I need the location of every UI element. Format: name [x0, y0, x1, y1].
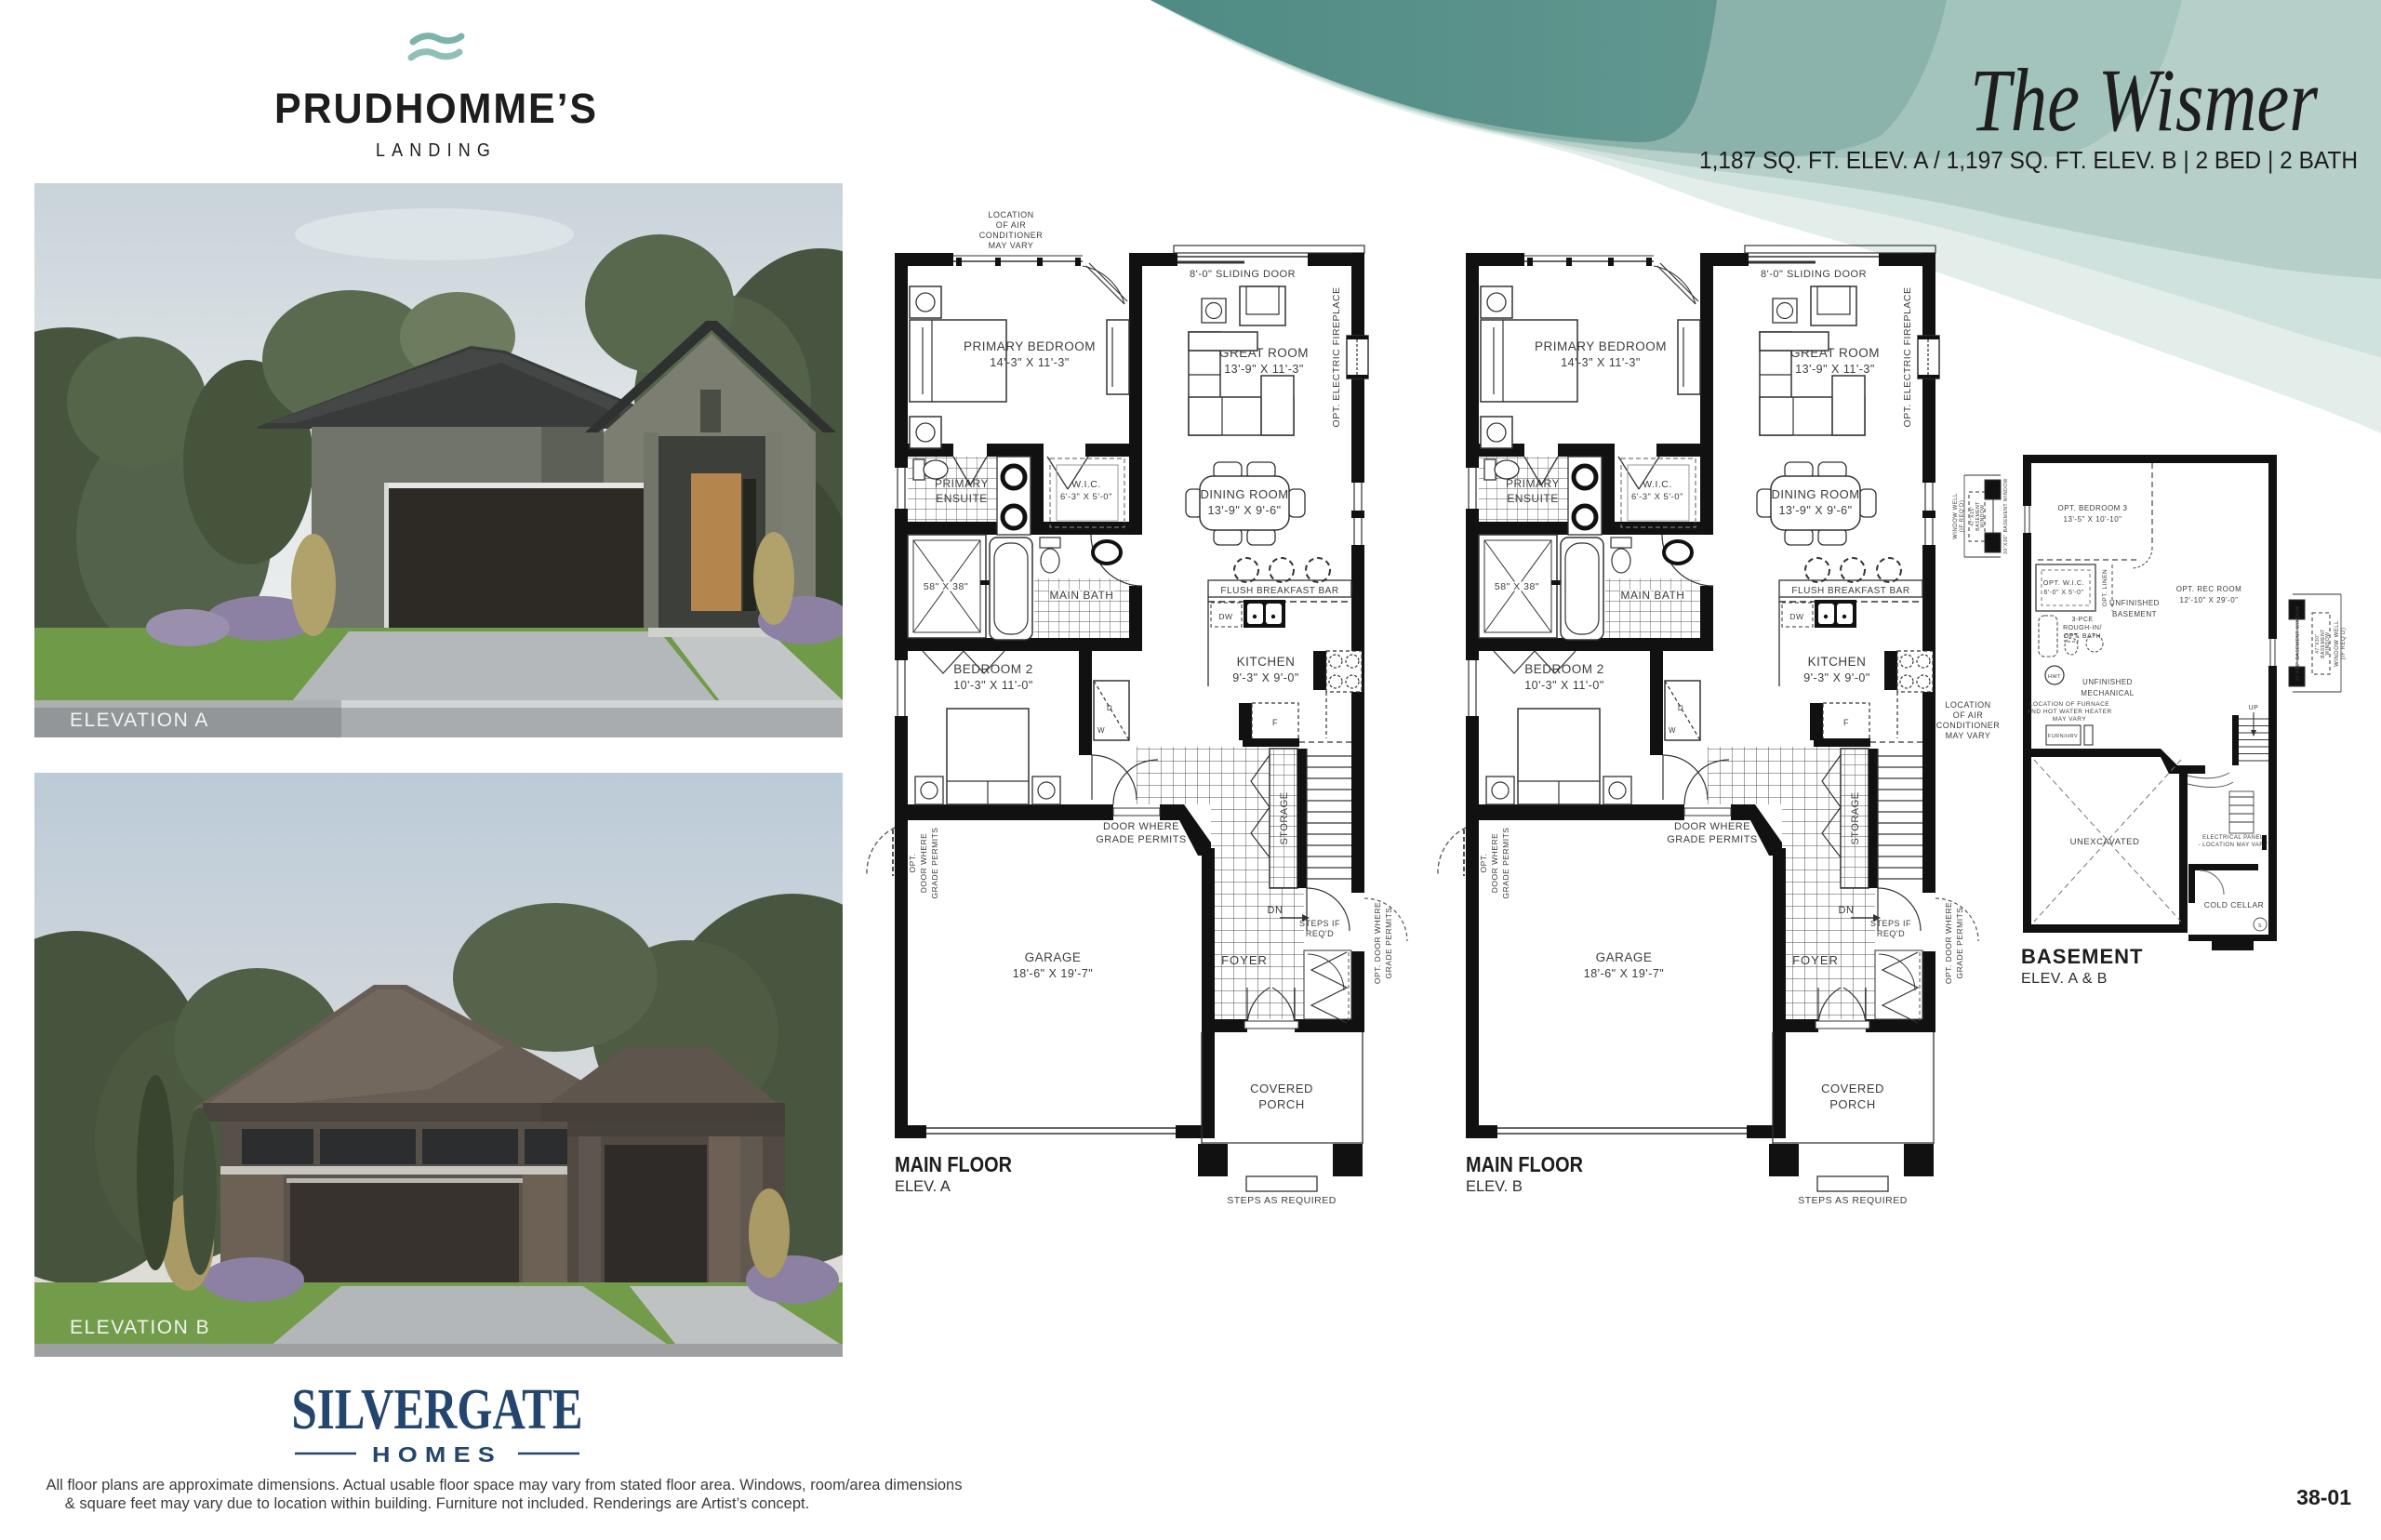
svg-text:The Wismer: The Wismer — [1970, 50, 2319, 150]
svg-text:MAY VARY: MAY VARY — [1946, 731, 1991, 740]
svg-text:ELEV. A & B: ELEV. A & B — [2021, 971, 2108, 987]
svg-text:MAY VARY: MAY VARY — [989, 241, 1034, 250]
svg-text:MAIN FLOOR: MAIN FLOOR — [895, 1152, 1012, 1176]
svg-text:HWT: HWT — [2048, 674, 2061, 680]
svg-text:WINDOW: WINDOW — [2325, 632, 2331, 656]
svg-text:BASEMENT: BASEMENT — [2112, 610, 2157, 618]
svg-text:1,187 SQ. FT. ELEV. A / 1,197: 1,187 SQ. FT. ELEV. A / 1,197 SQ. FT. EL… — [1699, 146, 2358, 174]
svg-text:SILVERGATE: SILVERGATE — [292, 1378, 583, 1441]
svg-text:CONDITIONER: CONDITIONER — [1936, 721, 2001, 730]
svg-text:(IF REQ’D): (IF REQ’D) — [1960, 500, 1965, 533]
svg-text:AND HOT WATER HEATER: AND HOT WATER HEATER — [2027, 709, 2111, 715]
svg-text:OPT. W.I.C.: OPT. W.I.C. — [2043, 578, 2085, 587]
svg-text:UNEXCAVATED: UNEXCAVATED — [2070, 837, 2140, 847]
svg-text:30"X36" BASEMENT WINDOW: 30"X36" BASEMENT WINDOW — [2295, 605, 2301, 682]
svg-text:MECHANICAL: MECHANICAL — [2081, 689, 2135, 697]
svg-text:(IF REQ’D): (IF REQ’D) — [2341, 628, 2347, 660]
svg-text:All floor plans are approximat: All floor plans are approximate dimensio… — [47, 1477, 963, 1494]
svg-text:6'-0" X 5'-0": 6'-0" X 5'-0" — [2044, 590, 2084, 596]
svg-text:OPT. LINEN: OPT. LINEN — [2102, 569, 2108, 606]
svg-text:FURN/HRV: FURN/HRV — [2048, 734, 2078, 739]
svg-text:WINDOW WELL: WINDOW WELL — [2334, 620, 2340, 667]
svg-text:UNFINISHED: UNFINISHED — [2082, 678, 2133, 686]
svg-text:- LOCATION MAY VARY: - LOCATION MAY VARY — [2199, 843, 2268, 848]
svg-text:12'-10" X 29'-0": 12'-10" X 29'-0" — [2180, 596, 2239, 604]
svg-text:S: S — [2258, 923, 2262, 929]
svg-text:OF AIR: OF AIR — [996, 220, 1027, 230]
svg-text:LOCATION: LOCATION — [1945, 700, 1990, 710]
svg-text:HOMES: HOMES — [372, 1442, 502, 1467]
svg-text:OPT. REC ROOM: OPT. REC ROOM — [2176, 585, 2242, 593]
svg-text:3-PCE: 3-PCE — [2071, 617, 2093, 623]
svg-text:ROUGH-IN/: ROUGH-IN/ — [2063, 625, 2102, 631]
svg-text:& square feet may vary due to: & square feet may vary due to location w… — [65, 1495, 809, 1512]
svg-text:ELEVATION A: ELEVATION A — [70, 710, 209, 731]
svg-text:ELECTRICAL PANEL: ELECTRICAL PANEL — [2202, 835, 2264, 841]
svg-text:COLD CELLAR: COLD CELLAR — [2204, 900, 2265, 909]
svg-text:ELEV. B: ELEV. B — [1466, 1178, 1523, 1195]
svg-text:ELEV. A: ELEV. A — [895, 1178, 951, 1195]
svg-text:LOCATION: LOCATION — [988, 210, 1033, 219]
svg-text:MAY VARY: MAY VARY — [2053, 716, 2087, 723]
svg-text:OF AIR: OF AIR — [1953, 710, 1984, 720]
svg-text:OPT. BATH: OPT. BATH — [2064, 633, 2101, 640]
svg-text:PRUDHOMME’S: PRUDHOMME’S — [274, 85, 598, 132]
svg-text:WINDOW WELL: WINDOW WELL — [1953, 493, 1959, 539]
svg-text:LANDING: LANDING — [376, 140, 497, 161]
svg-text:ELEVATION B: ELEVATION B — [70, 1317, 210, 1338]
svg-text:BASEMENT: BASEMENT — [2021, 945, 2143, 968]
svg-text:38-01: 38-01 — [2296, 1485, 2351, 1509]
svg-text:UNFINISHED: UNFINISHED — [2109, 599, 2160, 607]
svg-text:13'-5" X 10'-10": 13'-5" X 10'-10" — [2064, 515, 2122, 524]
svg-text:UP: UP — [2249, 705, 2259, 711]
svg-text:WINDOW: WINDOW — [1980, 505, 1986, 528]
svg-text:CONDITIONER: CONDITIONER — [979, 231, 1044, 240]
svg-text:30"X36" BASEMENT WINDOW: 30"X36" BASEMENT WINDOW — [2003, 478, 2009, 554]
svg-text:LOCATION OF FURNACE: LOCATION OF FURNACE — [2029, 701, 2109, 708]
svg-text:OPT. BEDROOM 3: OPT. BEDROOM 3 — [2057, 504, 2127, 512]
svg-text:MAIN FLOOR: MAIN FLOOR — [1466, 1152, 1583, 1176]
